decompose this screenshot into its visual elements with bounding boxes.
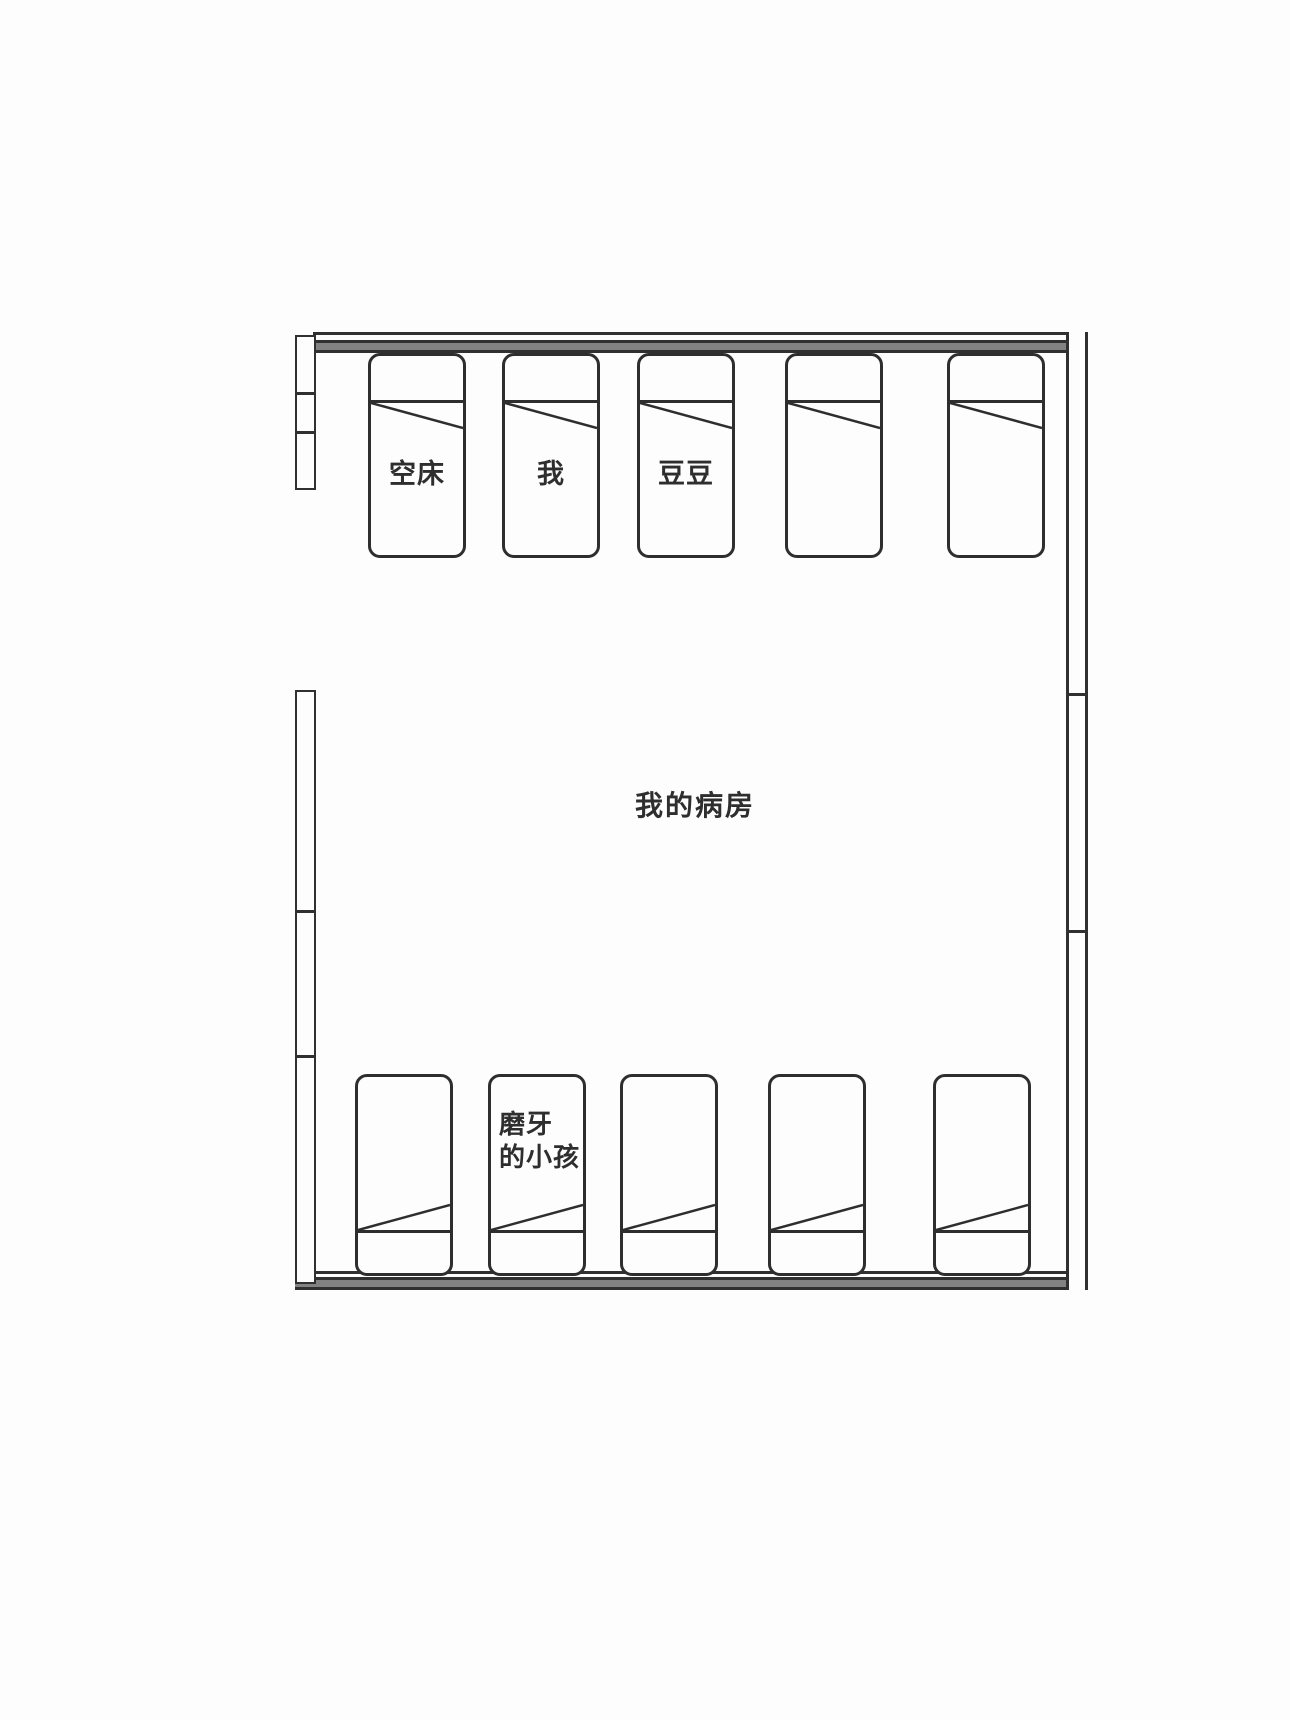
- bed-label-line-1: 磨牙: [499, 1109, 580, 1142]
- bottom-wall: [295, 1277, 1088, 1290]
- blanket-fold-line: [950, 356, 1042, 555]
- blanket-fold-line: [771, 1077, 863, 1273]
- bed-label: 磨牙 的小孩: [499, 1109, 580, 1174]
- bed-bottom-5: [933, 1074, 1031, 1276]
- blanket-fold-line: [936, 1077, 1028, 1273]
- bed-label: 我: [505, 452, 597, 491]
- top-wall-outer-line: [313, 332, 1088, 335]
- floor-plan: 空床 我 豆豆 磨牙 的小孩: [0, 0, 1290, 1720]
- left-wall-lower-segment: [295, 690, 316, 1284]
- bed-top-2: 我: [502, 353, 600, 558]
- bed-bottom-2: 磨牙 的小孩: [488, 1074, 586, 1276]
- right-wall: [1066, 332, 1088, 1290]
- left-wall-upper-segment: [295, 335, 316, 490]
- bed-top-3: 豆豆: [637, 353, 735, 558]
- top-wall: [313, 340, 1088, 353]
- bed-label-line-2: 的小孩: [499, 1142, 580, 1175]
- blanket-fold-line: [623, 1077, 715, 1273]
- right-wall-tick: [1069, 930, 1085, 933]
- left-wall-tick: [297, 431, 314, 434]
- blanket-fold-line: [358, 1077, 450, 1273]
- bed-label: 豆豆: [640, 452, 732, 491]
- bed-top-5: [947, 353, 1045, 558]
- left-wall-tick: [297, 910, 314, 913]
- bed-bottom-1: [355, 1074, 453, 1276]
- bed-label: 空床: [371, 452, 463, 491]
- left-wall-tick: [297, 1055, 314, 1058]
- bed-bottom-4: [768, 1074, 866, 1276]
- right-wall-tick: [1069, 693, 1085, 696]
- blanket-fold-line: [788, 356, 880, 555]
- bed-top-4: [785, 353, 883, 558]
- left-wall-tick: [297, 392, 314, 395]
- bed-bottom-3: [620, 1074, 718, 1276]
- bed-top-1: 空床: [368, 353, 466, 558]
- room-title: 我的病房: [545, 784, 845, 824]
- blanket-fold-line: [491, 1077, 583, 1273]
